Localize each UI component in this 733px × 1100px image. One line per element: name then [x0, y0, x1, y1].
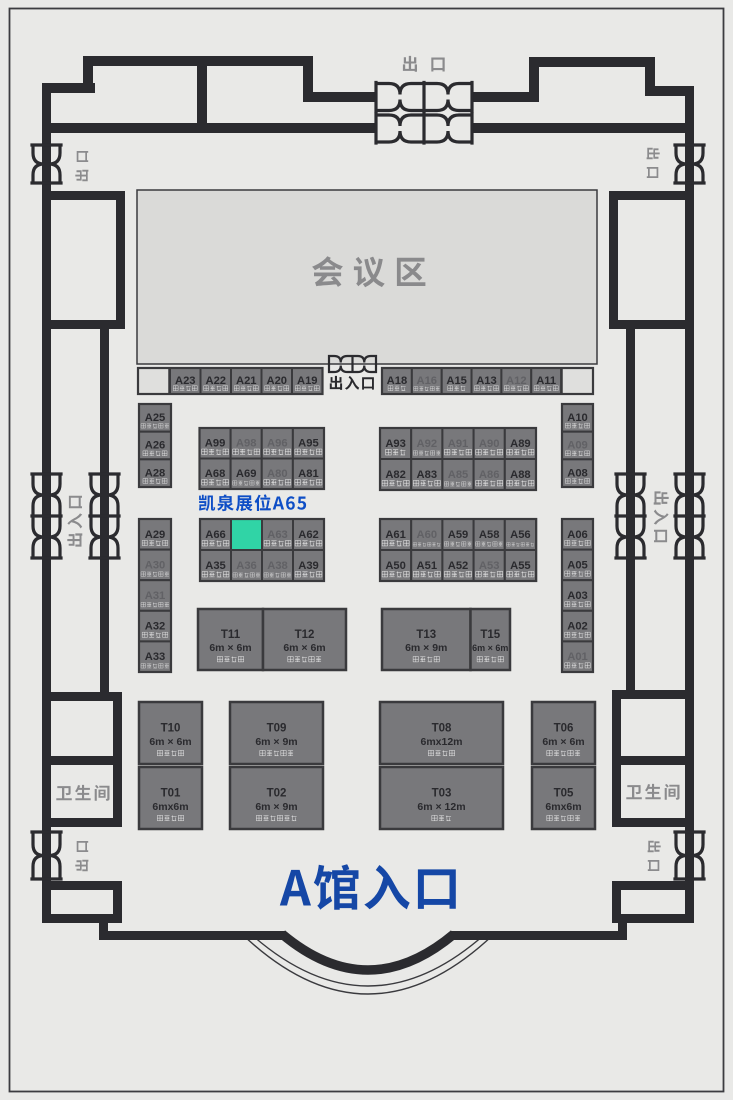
svg-text:A83: A83 — [417, 469, 438, 481]
svg-text:A82: A82 — [385, 469, 406, 481]
svg-text:A30: A30 — [145, 559, 166, 571]
svg-text:A23: A23 — [175, 375, 196, 387]
svg-text:A90: A90 — [479, 438, 500, 450]
svg-text:6mx6m: 6mx6m — [152, 801, 188, 813]
svg-text:A29: A29 — [145, 529, 166, 541]
svg-text:A60: A60 — [417, 529, 438, 541]
svg-text:A16: A16 — [417, 375, 438, 387]
svg-text:A12: A12 — [506, 375, 527, 387]
svg-text:A61: A61 — [385, 529, 406, 541]
svg-text:A66: A66 — [205, 529, 226, 541]
svg-text:T06: T06 — [554, 722, 574, 734]
svg-text:A91: A91 — [448, 438, 469, 450]
svg-text:A58: A58 — [479, 529, 500, 541]
svg-text:A11: A11 — [536, 375, 556, 387]
svg-text:A13: A13 — [476, 375, 497, 387]
svg-text:A95: A95 — [298, 438, 319, 450]
svg-text:T11: T11 — [221, 629, 241, 641]
svg-text:6m × 6m: 6m × 6m — [149, 736, 191, 748]
svg-text:A09: A09 — [567, 440, 588, 452]
svg-text:6m × 9m: 6m × 9m — [255, 736, 297, 748]
svg-text:A33: A33 — [145, 651, 166, 663]
svg-text:A99: A99 — [205, 438, 226, 450]
svg-text:A53: A53 — [479, 560, 500, 572]
svg-text:6m × 9m: 6m × 9m — [405, 642, 447, 654]
svg-text:A19: A19 — [297, 375, 318, 387]
svg-text:A26: A26 — [145, 440, 166, 452]
svg-text:A06: A06 — [567, 529, 588, 541]
svg-text:A28: A28 — [145, 467, 166, 479]
svg-text:A81: A81 — [298, 468, 319, 480]
svg-text:A69: A69 — [236, 468, 257, 480]
svg-text:T08: T08 — [432, 722, 452, 734]
svg-text:A31: A31 — [145, 590, 166, 602]
svg-text:A02: A02 — [567, 621, 588, 633]
svg-text:T05: T05 — [554, 787, 574, 799]
svg-text:A35: A35 — [205, 560, 226, 572]
svg-text:T02: T02 — [267, 787, 287, 799]
svg-text:A01: A01 — [567, 651, 588, 663]
svg-text:A59: A59 — [448, 529, 469, 541]
svg-text:6mx12m: 6mx12m — [420, 736, 462, 748]
svg-text:6m × 6m: 6m × 6m — [472, 643, 508, 653]
svg-text:A80: A80 — [267, 468, 288, 480]
svg-text:T09: T09 — [267, 722, 287, 734]
svg-text:A63: A63 — [267, 529, 288, 541]
svg-text:T10: T10 — [161, 722, 181, 734]
svg-text:A68: A68 — [205, 468, 226, 480]
svg-text:T13: T13 — [416, 629, 436, 641]
svg-text:A98: A98 — [236, 438, 257, 450]
svg-text:T12: T12 — [295, 629, 315, 641]
svg-text:A39: A39 — [298, 560, 319, 572]
svg-text:A08: A08 — [567, 467, 588, 479]
svg-text:A25: A25 — [145, 412, 166, 424]
svg-text:A20: A20 — [266, 375, 287, 387]
svg-text:6m × 6m: 6m × 6m — [542, 736, 584, 748]
svg-text:T03: T03 — [432, 787, 452, 799]
svg-text:6m × 9m: 6m × 9m — [255, 801, 297, 813]
svg-text:A52: A52 — [448, 560, 469, 572]
svg-text:A18: A18 — [387, 375, 408, 387]
svg-text:A21: A21 — [236, 375, 257, 387]
svg-text:A32: A32 — [145, 621, 166, 633]
svg-text:6m × 6m: 6m × 6m — [209, 642, 251, 654]
svg-text:A55: A55 — [510, 560, 531, 572]
svg-text:A86: A86 — [479, 469, 500, 481]
svg-text:A88: A88 — [510, 469, 531, 481]
svg-text:6m × 12m: 6m × 12m — [417, 801, 465, 813]
svg-text:A56: A56 — [510, 529, 531, 541]
svg-text:A93: A93 — [385, 438, 406, 450]
svg-text:A89: A89 — [510, 438, 531, 450]
svg-text:T15: T15 — [480, 629, 500, 641]
svg-text:A22: A22 — [205, 375, 226, 387]
svg-text:A62: A62 — [298, 529, 319, 541]
svg-text:6mx6m: 6mx6m — [545, 801, 581, 813]
svg-text:A03: A03 — [567, 590, 588, 602]
svg-text:A50: A50 — [385, 560, 406, 572]
svg-text:6m × 6m: 6m × 6m — [283, 642, 325, 654]
svg-text:T01: T01 — [161, 787, 181, 799]
svg-text:A36: A36 — [236, 560, 257, 572]
svg-text:A51: A51 — [417, 560, 438, 572]
svg-text:A15: A15 — [446, 375, 467, 387]
svg-text:A38: A38 — [267, 560, 288, 572]
svg-text:A05: A05 — [567, 559, 588, 571]
svg-text:A10: A10 — [567, 412, 588, 424]
svg-text:A85: A85 — [448, 469, 469, 481]
svg-text:A96: A96 — [267, 438, 288, 450]
svg-text:A92: A92 — [417, 438, 438, 450]
